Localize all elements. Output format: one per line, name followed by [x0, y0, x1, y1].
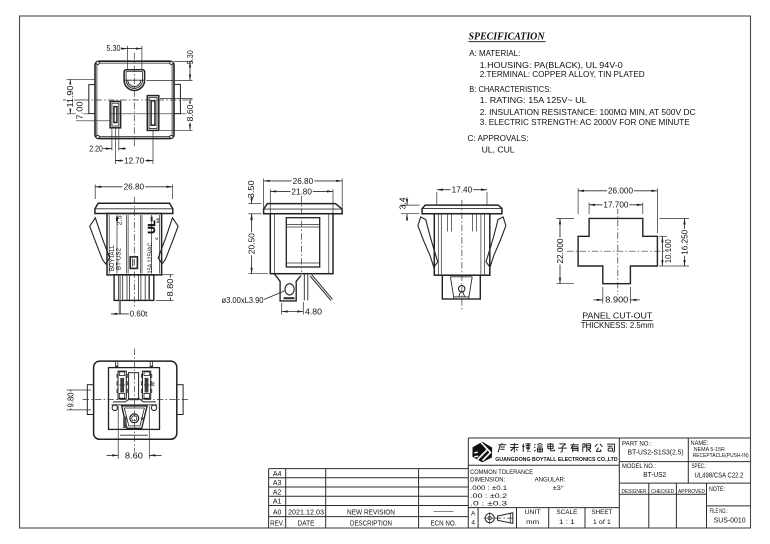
svg-text:RECEPTACLE(PUSH-IN): RECEPTACLE(PUSH-IN) [693, 453, 749, 459]
svg-text:mm: mm [526, 519, 539, 526]
svg-text:DIMENSION:: DIMENSION: [470, 477, 505, 484]
svg-text:A4: A4 [273, 471, 282, 478]
svg-text:±3°: ±3° [553, 484, 564, 492]
svg-text:22.000: 22.000 [556, 238, 565, 264]
svg-text:REV.: REV. [270, 520, 284, 527]
svg-text:SHEET: SHEET [591, 509, 612, 516]
svg-text:2.20: 2.20 [89, 145, 103, 154]
svg-text:3. ELECTRIC STRENGTH: AC 200: 3. ELECTRIC STRENGTH: AC 2000V FOR ONE M… [480, 117, 690, 127]
svg-text:11.90: 11.90 [66, 85, 75, 108]
svg-text:ECN NO.: ECN NO. [431, 520, 457, 527]
svg-text:20.50: 20.50 [248, 233, 257, 255]
svg-text:BOYTALL: BOYTALL [110, 244, 116, 271]
svg-text:A3: A3 [273, 480, 282, 487]
svg-text:SPECIFICATION: SPECIFICATION [469, 32, 545, 43]
svg-text:2. INSULATION RESISTANCE: 10: 2. INSULATION RESISTANCE: 100MΩ MIN, AT … [480, 107, 696, 117]
svg-text:SUS-0010: SUS-0010 [714, 517, 746, 524]
svg-text:3.50: 3.50 [247, 180, 256, 199]
svg-text:2.5: 2.5 [117, 215, 124, 225]
svg-text:10.100: 10.100 [664, 239, 673, 264]
svg-text:ø3.00xL3.90: ø3.00xL3.90 [222, 296, 265, 305]
svg-text:UL498/CSA C22.2: UL498/CSA C22.2 [695, 473, 744, 480]
svg-text:12.70: 12.70 [124, 157, 145, 166]
svg-text:2.TERMINAL: COPPER ALLOY, TIN: 2.TERMINAL: COPPER ALLOY, TIN PLATED [480, 69, 645, 79]
svg-text:NEW REVISION: NEW REVISION [347, 509, 395, 516]
svg-text:8.60: 8.60 [125, 451, 144, 460]
svg-text:5.30: 5.30 [186, 50, 195, 64]
svg-text:1 : 1: 1 : 1 [559, 519, 575, 526]
svg-text:CHECKED: CHECKED [651, 489, 674, 495]
svg-text:COMMON TOLERANCE: COMMON TOLERANCE [470, 469, 534, 476]
svg-text:BT-US2: BT-US2 [643, 472, 666, 479]
svg-text:SPEC.:: SPEC.: [692, 463, 707, 470]
svg-text:0.60t: 0.60t [130, 309, 148, 318]
svg-text:15A 125VAC: 15A 125VAC [147, 242, 154, 273]
svg-text:4.80: 4.80 [305, 308, 323, 317]
svg-text:W: W [151, 381, 156, 386]
svg-text:NOTE:: NOTE: [709, 486, 725, 493]
svg-text:26.80: 26.80 [124, 183, 145, 192]
svg-text:26.80: 26.80 [293, 177, 314, 186]
svg-text:UL, CUL: UL, CUL [482, 145, 515, 155]
svg-text:THICKNESS: 2.5mm: THICKNESS: 2.5mm [581, 320, 654, 330]
svg-text:A: A [471, 511, 476, 518]
svg-text:C: APPROVALS:: C: APPROVALS: [468, 133, 529, 143]
svg-text:BT-US2-S1S3(2.5): BT-US2-S1S3(2.5) [628, 450, 684, 457]
svg-text:26.000: 26.000 [608, 187, 634, 196]
svg-text:UNIT: UNIT [525, 509, 541, 516]
svg-text:17.40: 17.40 [452, 186, 473, 195]
svg-text:FILE NO.:: FILE NO.: [710, 508, 728, 515]
svg-text:17.700: 17.700 [603, 201, 629, 210]
svg-text:.000 : ±0.1: .000 : ±0.1 [470, 485, 507, 492]
svg-text:4: 4 [471, 520, 475, 527]
svg-text:A1: A1 [273, 499, 282, 506]
svg-text:.0 : ±0.3: .0 : ±0.3 [470, 500, 508, 507]
svg-text:NAME:: NAME: [691, 440, 709, 447]
svg-text:1. RATING: 15A 125V~ UL: 1. RATING: 15A 125V~ UL [480, 95, 587, 105]
svg-text:2021.12.03: 2021.12.03 [288, 509, 324, 516]
svg-text:DATE: DATE [298, 520, 315, 527]
svg-text:9.80: 9.80 [67, 392, 76, 408]
svg-text:B: CHARACTERISTICS:: B: CHARACTERISTICS: [469, 84, 551, 94]
svg-text:5.30: 5.30 [107, 44, 121, 53]
svg-text:8.900: 8.900 [605, 296, 629, 305]
svg-text:GUANGDONG BOYTALL ELECTRONICS: GUANGDONG BOYTALL ELECTRONICS CO.,LTD [495, 457, 618, 463]
svg-text:————: ———— [434, 509, 454, 516]
svg-text:21.80: 21.80 [291, 187, 312, 196]
svg-text:SCALE: SCALE [556, 509, 578, 516]
svg-text:1 of 1: 1 of 1 [593, 519, 611, 526]
svg-text:BT-US2: BT-US2 [117, 247, 123, 270]
svg-text:.00 : ±0.2: .00 : ±0.2 [470, 493, 508, 500]
svg-text:us: us [155, 217, 160, 223]
svg-text:ANGULAR:: ANGULAR: [535, 477, 566, 484]
svg-text:APPROVED: APPROVED [678, 489, 705, 495]
svg-text:DESIGNER: DESIGNER [622, 489, 647, 495]
svg-text:7.00: 7.00 [76, 101, 85, 120]
svg-text:PART NO.:: PART NO.: [622, 440, 652, 447]
svg-text:3.4: 3.4 [398, 197, 407, 210]
svg-text:A2: A2 [273, 489, 282, 496]
svg-text:A: MATERIAL:: A: MATERIAL: [469, 48, 520, 58]
svg-text:16.250: 16.250 [680, 229, 689, 255]
svg-text:8.80: 8.80 [166, 278, 175, 297]
svg-text:MODEL NO.:: MODEL NO.: [622, 463, 656, 470]
svg-text:A0: A0 [273, 509, 282, 516]
svg-text:DESCRIPTION: DESCRIPTION [350, 520, 392, 527]
svg-text:8.60: 8.60 [186, 104, 195, 122]
